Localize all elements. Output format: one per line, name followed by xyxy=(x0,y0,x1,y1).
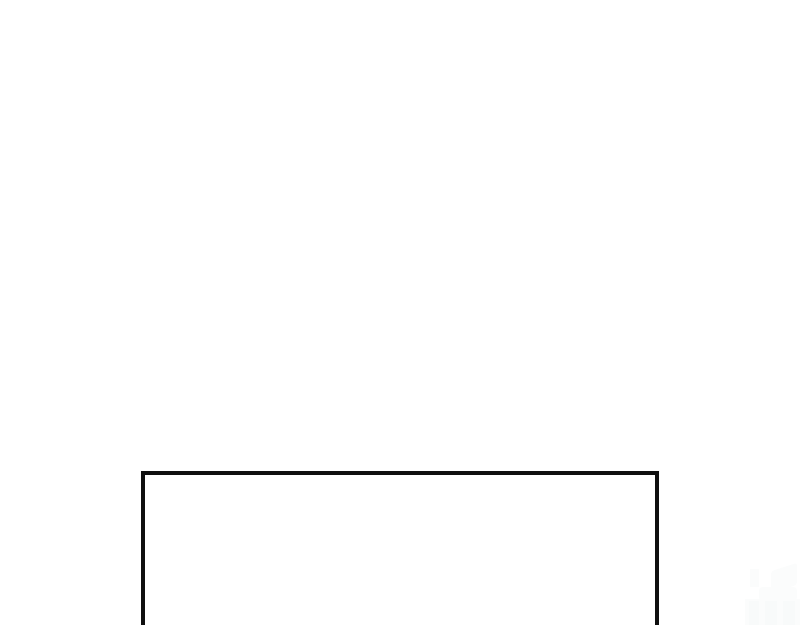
watermark-fragment xyxy=(745,599,800,625)
watermark xyxy=(745,565,800,625)
comic-panel-frame xyxy=(141,471,659,625)
watermark-fragment xyxy=(765,601,777,625)
watermark-fragment xyxy=(759,587,797,601)
watermark-fragment xyxy=(749,601,759,625)
comic-page xyxy=(0,0,800,625)
watermark-fragment xyxy=(783,601,795,625)
watermark-fragment xyxy=(771,563,797,593)
watermark-fragment xyxy=(750,569,759,587)
